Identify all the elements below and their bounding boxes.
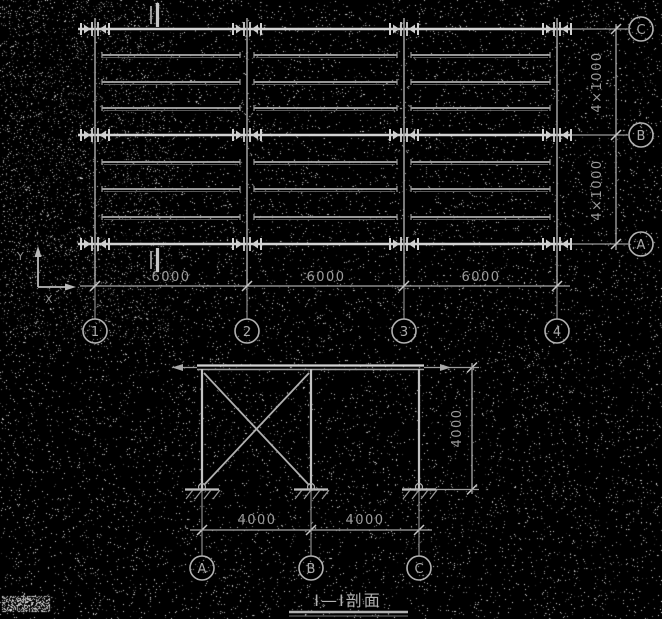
plan-main-beams	[78, 29, 572, 244]
section-bay-dim-2: 4000	[345, 513, 384, 528]
plan-bay-dim-3: 6000	[461, 270, 500, 285]
section-bubble-A: A	[190, 556, 214, 580]
plan-row-dim-1: 4×1000	[590, 51, 605, 112]
svg-text:B: B	[637, 129, 646, 144]
structural-drawing: 6000 6000 6000 4×1000 4×1000 1 2 3 4	[0, 0, 662, 619]
beam-arrow-right-icon	[440, 364, 451, 371]
axis-indicator: Y X	[16, 246, 76, 306]
section-bay-dim-1: 4000	[237, 513, 276, 528]
axis-arrow-right-icon	[65, 284, 76, 291]
svg-text:3: 3	[400, 325, 408, 340]
x-bracing	[204, 373, 309, 485]
grid-bubble-2: 2	[235, 319, 259, 343]
grid-bubble-A: A	[629, 232, 653, 256]
section-height-dim: 4000	[450, 408, 465, 447]
svg-text:A: A	[198, 562, 207, 577]
svg-text:4: 4	[553, 325, 561, 340]
svg-text:C: C	[636, 23, 645, 38]
beam-arrow-left-icon	[172, 364, 183, 371]
section-elevation	[172, 364, 479, 489]
section-caption-text: Ⅰ—Ⅰ剖面	[314, 591, 381, 610]
grid-bubble-3: 3	[392, 319, 416, 343]
plan-bay-dim-1: 6000	[151, 270, 190, 285]
grid-bubble-1: 1	[83, 319, 107, 343]
axis-y-label: Y	[16, 250, 24, 263]
svg-text:C: C	[414, 562, 423, 577]
section-caption: Ⅰ—Ⅰ剖面	[289, 591, 408, 616]
section-bubble-C: C	[407, 556, 431, 580]
plan-bay-dim-2: 6000	[306, 270, 345, 285]
grid-bubble-B: B	[629, 123, 653, 147]
grid-bubble-4: 4	[545, 319, 569, 343]
plan-row-dim-2: 4×1000	[590, 159, 605, 220]
svg-text:A: A	[637, 238, 646, 253]
section-bubble-B: B	[299, 556, 323, 580]
section-cut-marks	[151, 3, 158, 272]
plan-dimensions: 6000 6000 6000 4×1000 4×1000	[80, 24, 616, 286]
svg-text:1: 1	[91, 325, 99, 340]
svg-text:2: 2	[243, 325, 251, 340]
section-dimensions: 4000 4000 4000	[190, 363, 479, 530]
plan-grid-bubbles: 1 2 3 4 C B A	[83, 17, 653, 343]
grid-bubble-C: C	[629, 17, 653, 41]
svg-text:B: B	[307, 562, 316, 577]
cad-viewport[interactable]: 6000 6000 6000 4×1000 4×1000 1 2 3 4	[0, 0, 662, 619]
plan-column-gridlines	[95, 18, 557, 286]
axis-arrow-up-icon	[35, 246, 42, 257]
section-grid-bubbles: A B C	[190, 556, 431, 580]
axis-x-label: X	[45, 293, 53, 306]
